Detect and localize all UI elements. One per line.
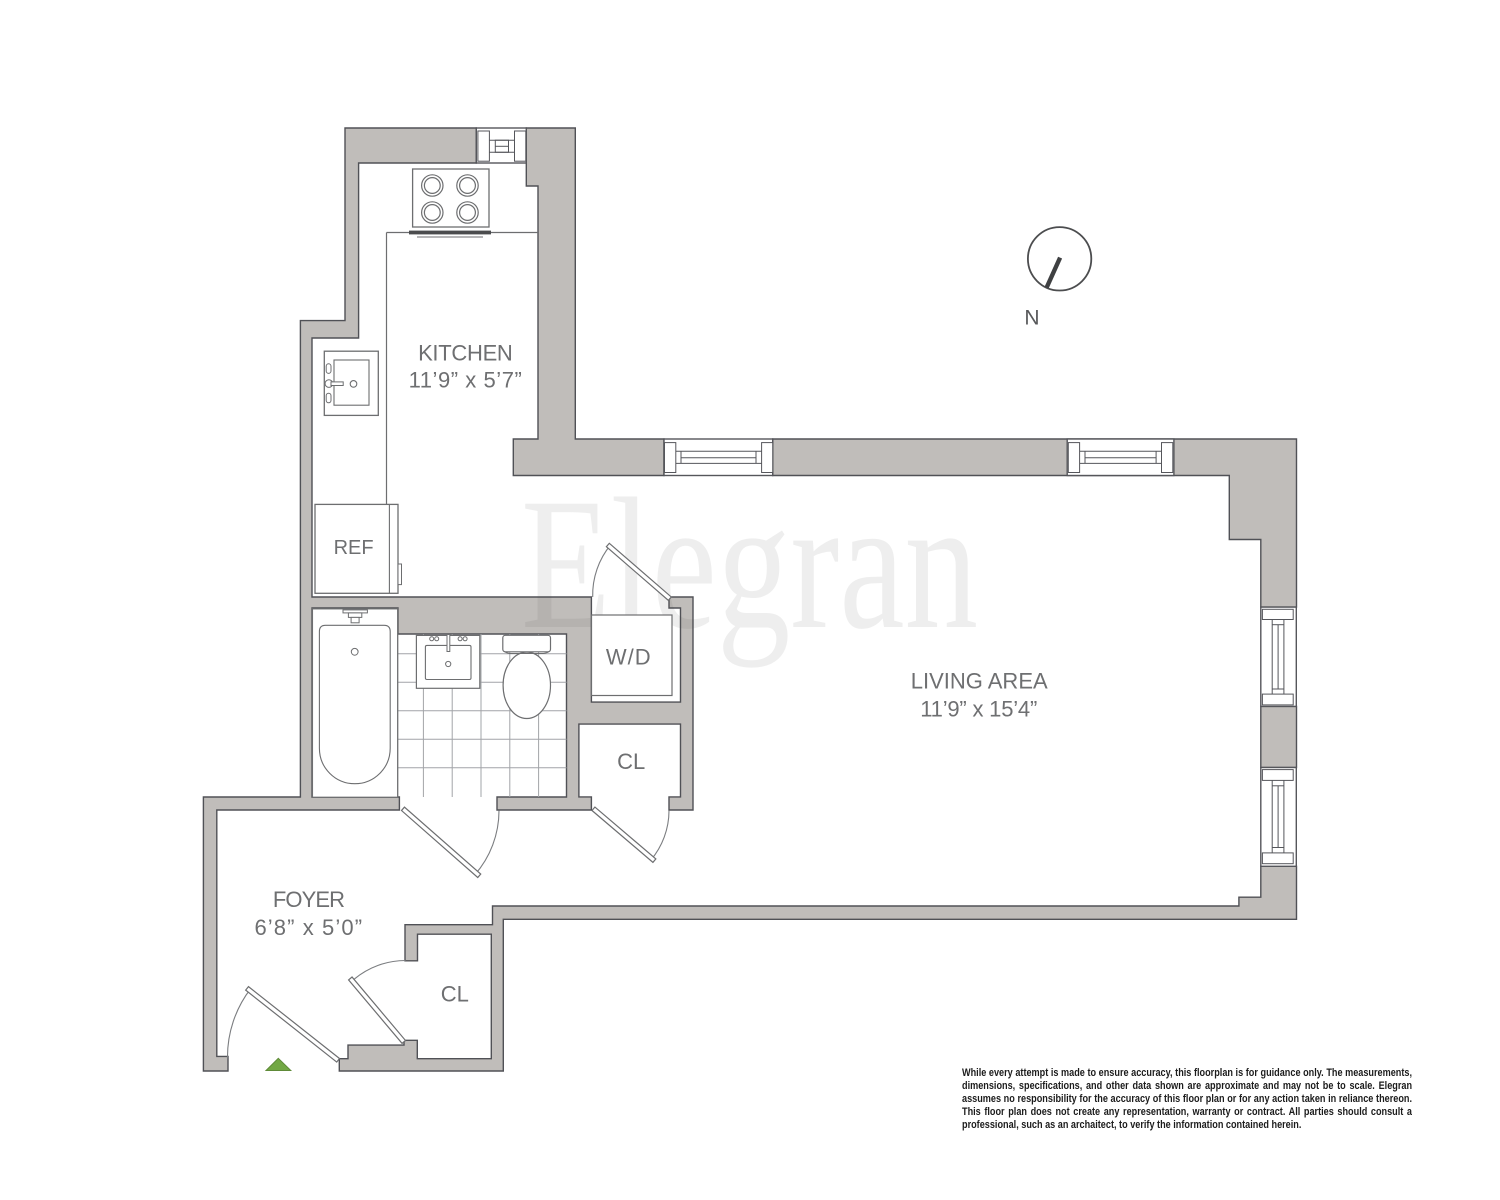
svg-text:LIVING AREA: LIVING AREA bbox=[911, 669, 1048, 694]
svg-text:11’9” x 5’7”: 11’9” x 5’7” bbox=[409, 368, 523, 393]
svg-text:REF: REF bbox=[334, 537, 374, 559]
svg-text:Elegran: Elegran bbox=[521, 460, 978, 668]
svg-text:W/D: W/D bbox=[606, 645, 652, 670]
svg-text:6’8” x 5’0”: 6’8” x 5’0” bbox=[254, 915, 363, 940]
svg-text:11’9” x 15’4”: 11’9” x 15’4” bbox=[920, 697, 1037, 722]
svg-text:FOYER: FOYER bbox=[273, 887, 344, 912]
svg-text:KITCHEN: KITCHEN bbox=[418, 340, 512, 365]
svg-text:CL: CL bbox=[617, 749, 645, 774]
svg-text:N: N bbox=[1024, 306, 1039, 329]
svg-text:CL: CL bbox=[441, 982, 469, 1007]
